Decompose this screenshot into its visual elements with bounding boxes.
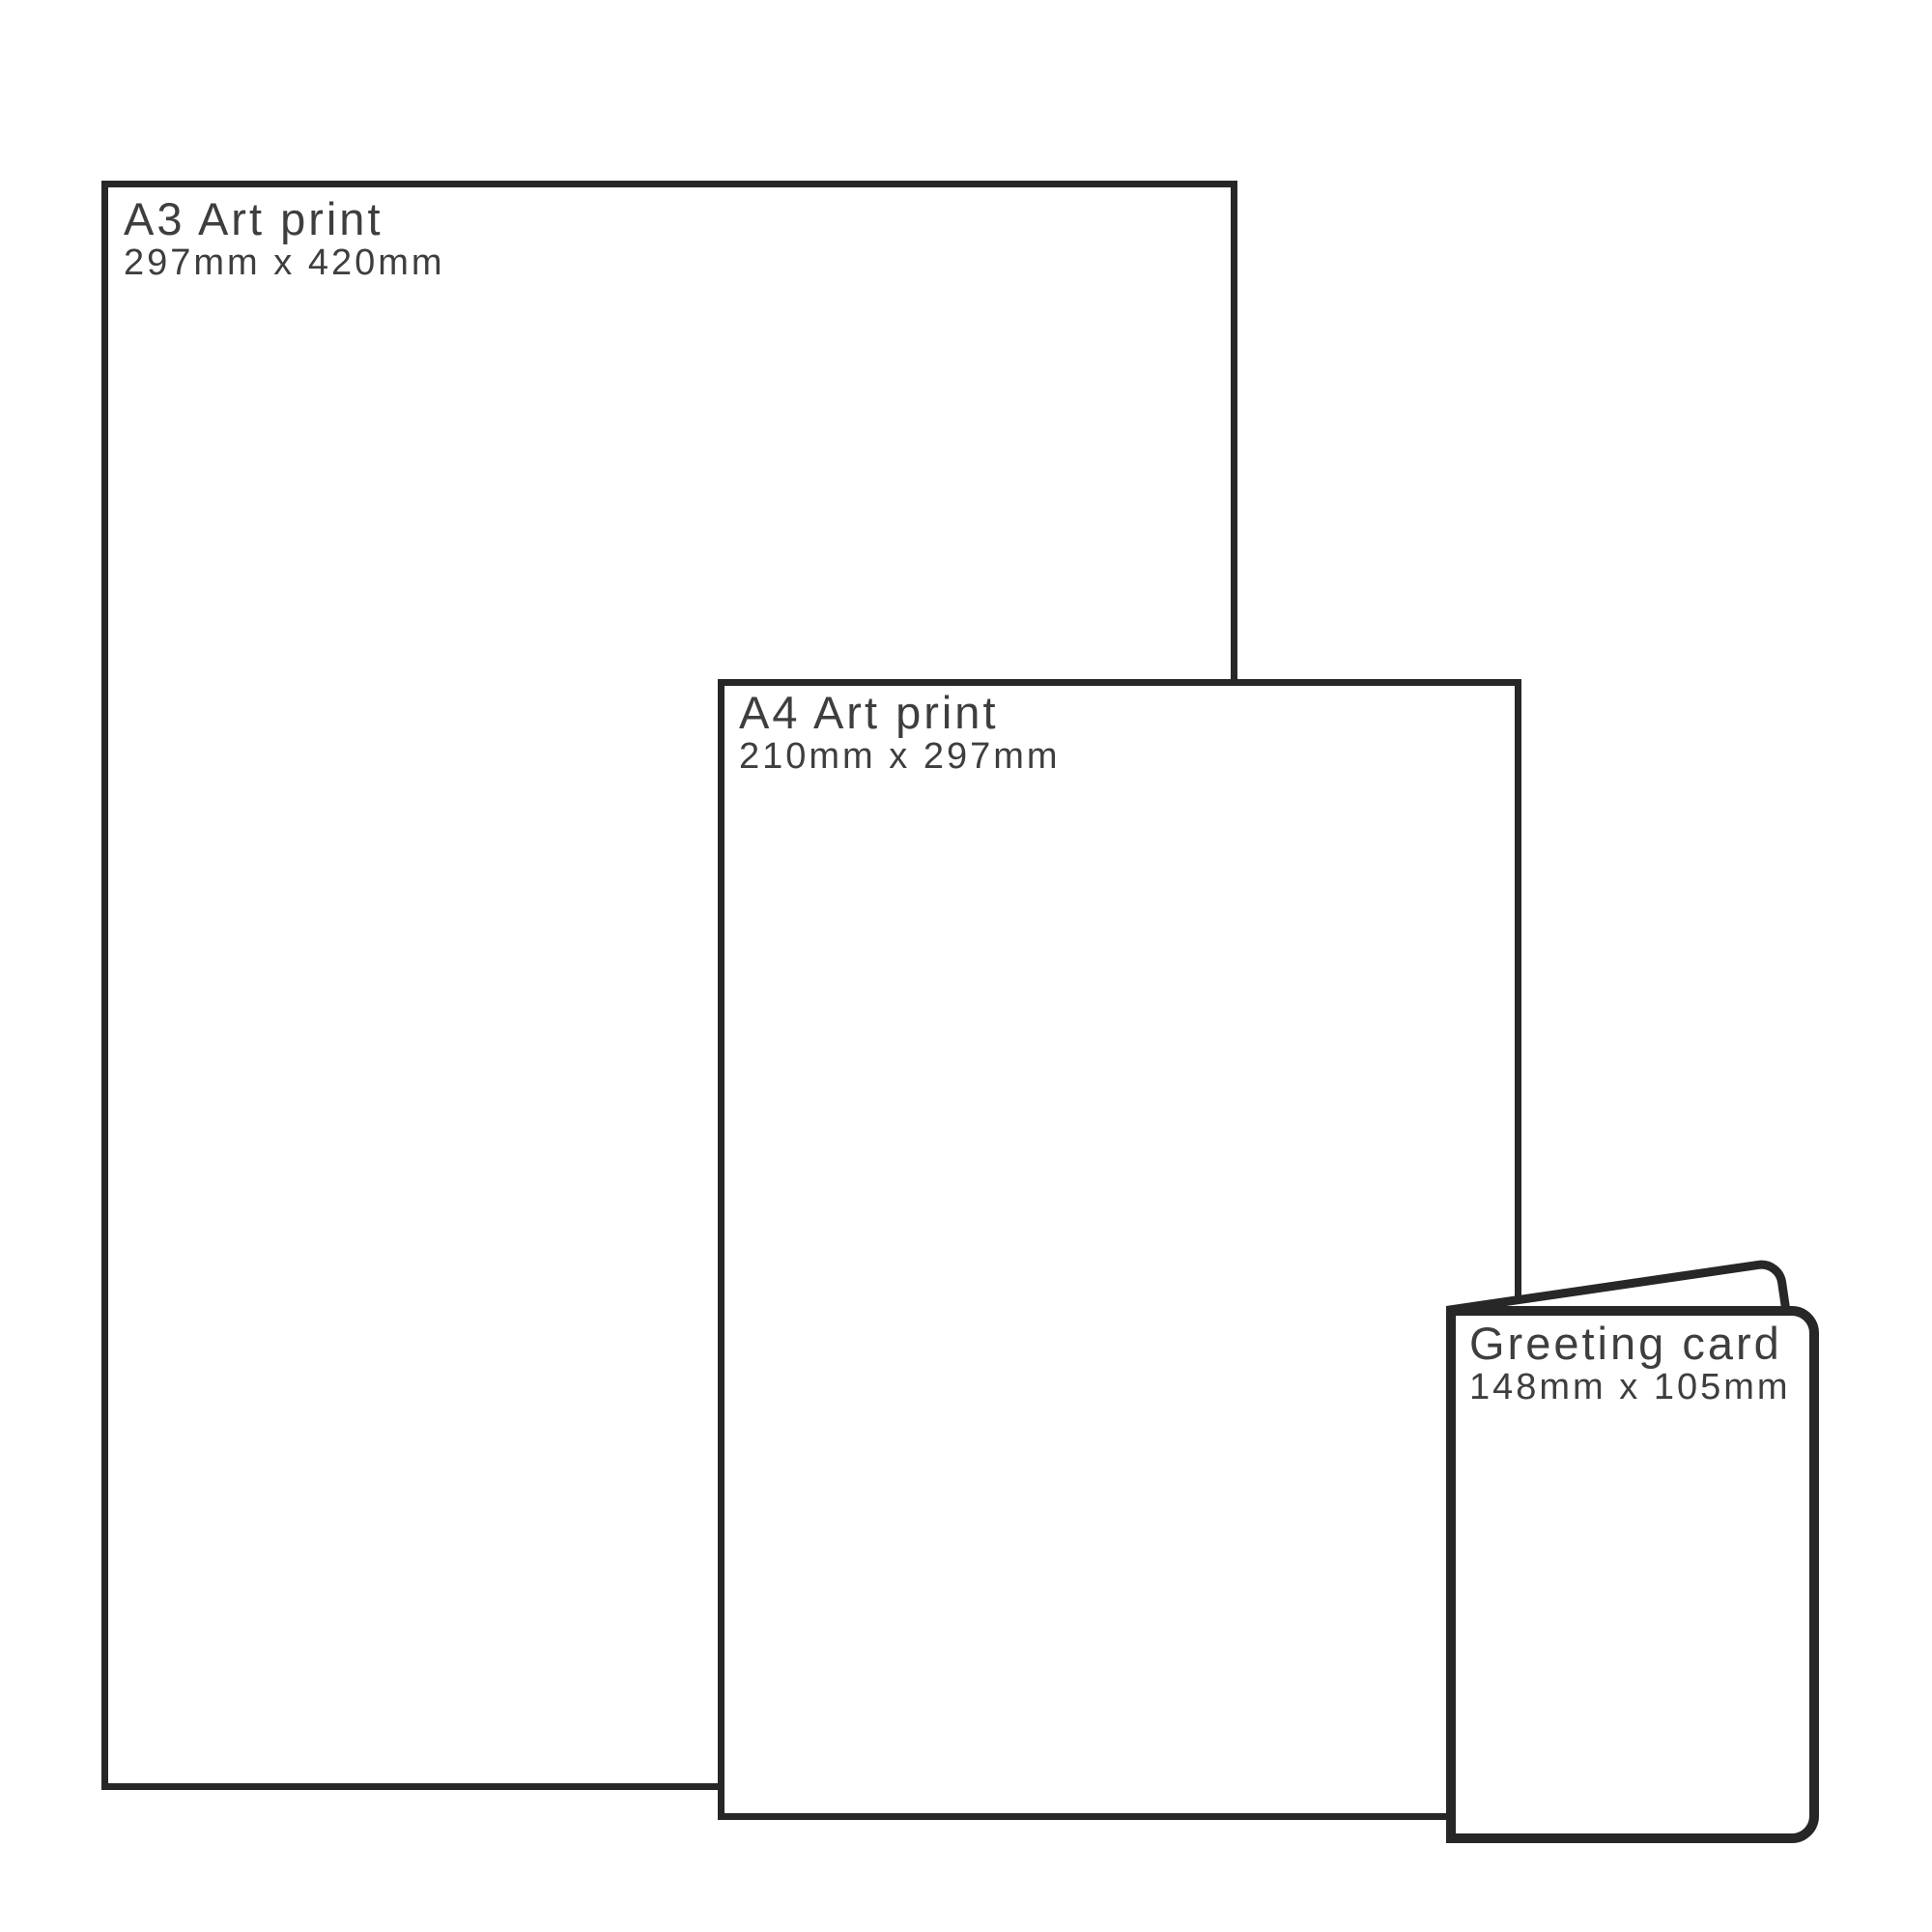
a4-print-dimensions: 210mm x 297mm: [739, 736, 1515, 778]
a4-print-outline: A4 Art print 210mm x 297mm: [718, 679, 1521, 1820]
greeting-card-dimensions: 148mm x 105mm: [1469, 1367, 1809, 1408]
a4-print-title: A4 Art print: [739, 690, 1515, 736]
a3-print-dimensions: 297mm x 420mm: [124, 242, 1231, 284]
greeting-card-label: Greeting card 148mm x 105mm: [1456, 1316, 1809, 1407]
a3-print-label: A3 Art print 297mm x 420mm: [108, 187, 1231, 283]
size-comparison-diagram: A3 Art print 297mm x 420mm A4 Art print …: [0, 0, 1932, 1932]
greeting-card-title: Greeting card: [1469, 1321, 1809, 1367]
a4-print-label: A4 Art print 210mm x 297mm: [724, 686, 1515, 777]
greeting-card-front: Greeting card 148mm x 105mm: [1446, 1306, 1819, 1843]
a3-print-title: A3 Art print: [124, 196, 1231, 242]
